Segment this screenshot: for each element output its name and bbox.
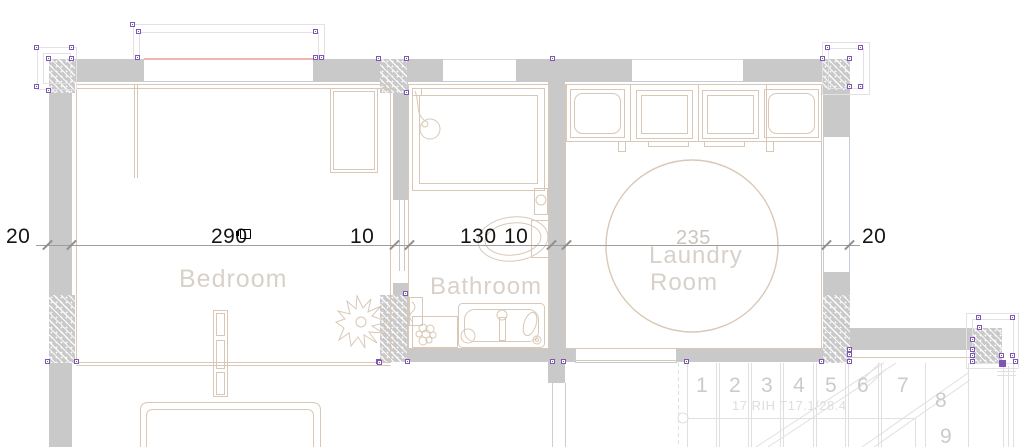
selection-handle[interactable] [819, 359, 824, 364]
selection-handle[interactable] [404, 56, 409, 61]
selection-handle[interactable] [825, 45, 830, 50]
selection-handle[interactable] [46, 56, 51, 61]
selection-handle[interactable] [34, 84, 39, 89]
dimension-marker-icon[interactable] [240, 229, 251, 239]
selection-handle[interactable] [376, 56, 381, 61]
stair-step-2: 2 [729, 374, 741, 398]
stair-step-9: 9 [940, 425, 952, 447]
stair-step-1: 1 [696, 374, 708, 398]
selection-handle[interactable] [820, 56, 825, 61]
stair-step-8: 8 [935, 389, 947, 413]
dimension-line[interactable] [36, 245, 860, 246]
stair-step-6: 6 [857, 374, 869, 398]
selection-handle[interactable] [970, 337, 975, 342]
selection-box-top-window-inner [139, 32, 319, 59]
selection-handle[interactable] [319, 55, 324, 60]
selection-handle[interactable] [970, 353, 975, 358]
dim-wall-left[interactable]: 20 [6, 225, 30, 249]
dim-wall-right[interactable]: 20 [862, 225, 886, 249]
selection-handle[interactable] [69, 56, 74, 61]
selection-handle[interactable] [858, 84, 863, 89]
bedroom-label[interactable]: Bedroom [179, 265, 287, 294]
selection-handle[interactable] [74, 359, 79, 364]
selection-handle[interactable] [561, 359, 566, 364]
stair-step-4: 4 [793, 374, 805, 398]
stair-door-jambs[interactable] [553, 383, 566, 447]
selection-handle[interactable] [847, 352, 852, 357]
selection-handle[interactable] [847, 84, 852, 89]
selection-handle[interactable] [970, 347, 975, 352]
selection-handle[interactable] [377, 360, 382, 365]
bathroom-label[interactable]: Bathroom [430, 273, 542, 301]
dim-gap2[interactable]: 10 [504, 225, 528, 249]
selection-box-top-right-inner [828, 48, 864, 89]
selection-handle[interactable] [1013, 359, 1018, 364]
selection-handle[interactable] [858, 45, 863, 50]
selection-handle[interactable] [136, 29, 141, 34]
selection-handle-active[interactable] [999, 360, 1006, 367]
bathroom-door[interactable] [400, 200, 405, 271]
selection-handle[interactable] [403, 291, 408, 296]
selection-handle[interactable] [34, 45, 39, 50]
stair-step-7: 7 [897, 374, 909, 398]
dim-laundry-width[interactable]: 235 [676, 227, 711, 250]
selection-handle[interactable] [970, 359, 975, 364]
selection-handle[interactable] [550, 56, 555, 61]
selection-handle[interactable] [130, 22, 135, 27]
selection-handle[interactable] [684, 359, 689, 364]
selection-handle[interactable] [1010, 353, 1015, 358]
dim-gap1[interactable]: 10 [350, 225, 374, 249]
plant [336, 296, 388, 348]
bathroom-fixtures[interactable] [410, 89, 551, 348]
dim-bathroom-width[interactable]: 130 [460, 225, 497, 249]
stair-railing [997, 362, 1016, 447]
stair-annotation: 17 RIH T17.1/28.4 [732, 398, 847, 413]
selection-handle[interactable] [976, 315, 981, 320]
selection-handle[interactable] [847, 359, 852, 364]
selection-handle[interactable] [1010, 315, 1015, 320]
selection-handle[interactable] [45, 359, 50, 364]
selection-handle[interactable] [999, 353, 1004, 358]
selection-handle[interactable] [404, 90, 409, 95]
selection-handle[interactable] [550, 359, 555, 364]
selection-handle[interactable] [405, 359, 410, 364]
selection-handle[interactable] [313, 29, 318, 34]
laundry-label-line2[interactable]: Room [650, 269, 718, 297]
selection-handle[interactable] [46, 88, 51, 93]
selection-handle[interactable] [977, 325, 982, 330]
plan-linework [0, 0, 1024, 447]
stair-step-5: 5 [825, 374, 837, 398]
stair-step-3: 3 [761, 374, 773, 398]
cad-floorplan-canvas[interactable]: Bedroom Bathroom Laundry Room 20 290 10 … [0, 0, 1024, 447]
selection-handle[interactable] [69, 45, 74, 50]
selection-handle[interactable] [313, 55, 318, 60]
selection-handle[interactable] [847, 56, 852, 61]
selection-handle[interactable] [135, 55, 140, 60]
